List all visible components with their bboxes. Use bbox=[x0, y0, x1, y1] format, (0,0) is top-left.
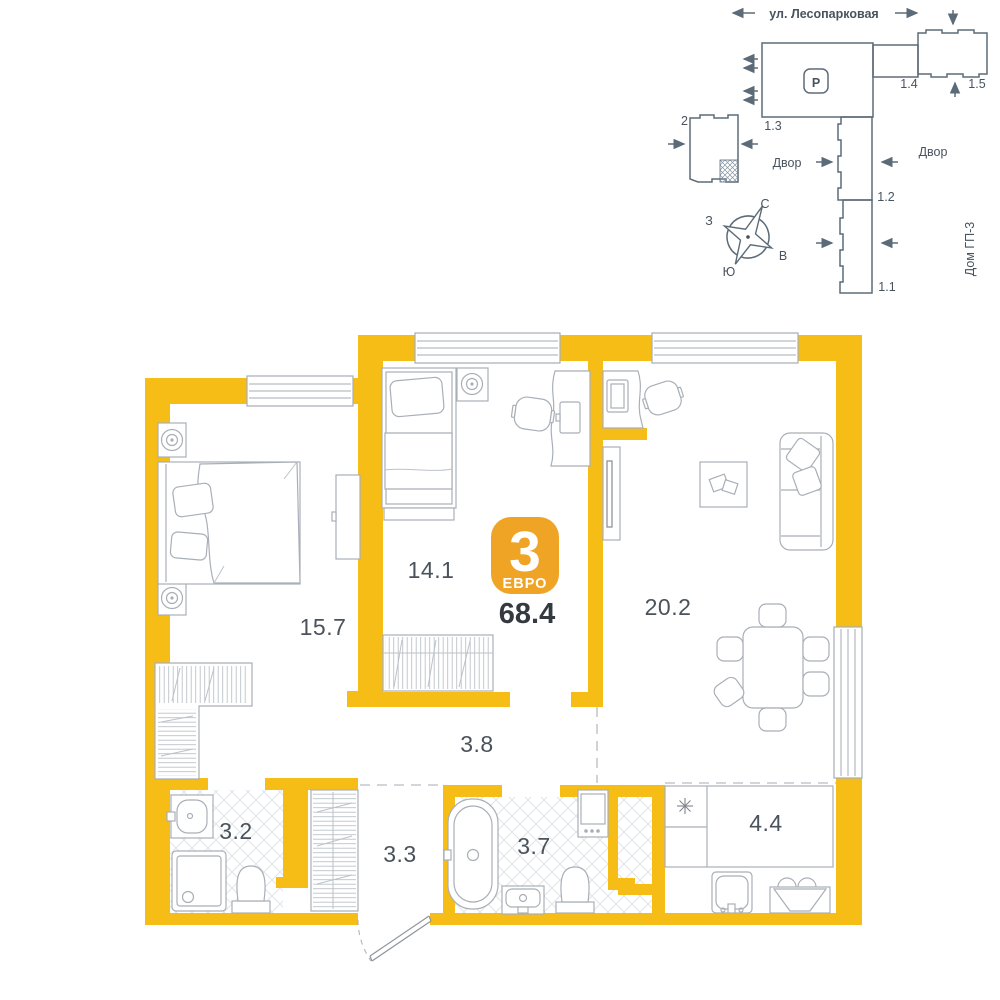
building-1-3-label: 1.3 bbox=[764, 119, 781, 133]
double-bed bbox=[158, 462, 300, 584]
parking-letter: P bbox=[812, 76, 820, 90]
washing-machine-icon bbox=[578, 790, 608, 837]
window-icon bbox=[415, 333, 560, 363]
compass-south-label: Ю bbox=[723, 265, 736, 279]
window-icon bbox=[652, 333, 798, 363]
dresser bbox=[332, 475, 360, 559]
chair bbox=[639, 378, 686, 419]
desk bbox=[603, 371, 643, 428]
building-1-5-label: 1.5 bbox=[968, 77, 985, 91]
compass-icon: С В Ю З bbox=[705, 195, 787, 279]
area-badge: 3 ЕВРО 68.4 bbox=[491, 517, 559, 630]
fridge-snowflake-icon bbox=[677, 798, 693, 814]
compass-north-label: С bbox=[760, 197, 769, 211]
kitchen-area-label: 4.4 bbox=[749, 810, 782, 836]
current-section-marker bbox=[720, 160, 738, 182]
vanity-sink-icon bbox=[502, 886, 544, 914]
shower-icon bbox=[172, 851, 226, 911]
room-bedroom-1 bbox=[155, 423, 360, 779]
bedroom-1-area-label: 15.7 bbox=[300, 614, 347, 640]
wardrobe bbox=[383, 635, 493, 691]
house-name-label: Дом ГП-3 bbox=[963, 222, 977, 277]
room-living bbox=[603, 371, 833, 731]
kitchen-sink-icon bbox=[712, 872, 752, 913]
floor-plan: 15.7 14.1 20.2 3.8 3.2 3.3 3.7 4.4 3 ЕВР… bbox=[145, 333, 862, 961]
building-1-2-label: 1.2 bbox=[877, 190, 894, 204]
building-1-4-label: 1.4 bbox=[900, 77, 917, 91]
building-2-label: 2 bbox=[681, 114, 688, 128]
chair bbox=[510, 395, 556, 433]
badge-type-label: ЕВРО bbox=[503, 576, 548, 592]
tv-console bbox=[603, 447, 620, 540]
stove-icon bbox=[770, 878, 830, 913]
room-closet bbox=[311, 790, 358, 911]
bathroom-2-area-label: 3.7 bbox=[517, 833, 550, 859]
tv-icon bbox=[607, 461, 612, 527]
compass-east-label: В bbox=[779, 249, 787, 263]
street-label: ул. Лесопарковая bbox=[769, 7, 878, 21]
floorplan-canvas: ул. Лесопарковая P 1.3 1.4 1.5 2 1.2 1.1… bbox=[0, 0, 1000, 1000]
monitor-icon bbox=[607, 380, 628, 412]
hallway-area-label: 3.8 bbox=[460, 731, 493, 757]
room-bedroom-2 bbox=[382, 368, 590, 691]
washbasin-icon bbox=[167, 795, 213, 838]
living-room-area-label: 20.2 bbox=[645, 594, 692, 620]
corner-wardrobe bbox=[155, 663, 252, 779]
balcony-window-icon bbox=[834, 627, 862, 778]
monitor-icon bbox=[560, 402, 580, 433]
badge-rooms-count: 3 bbox=[509, 520, 541, 584]
bathtub-icon bbox=[444, 799, 498, 909]
total-area-value: 68.4 bbox=[499, 598, 555, 630]
bathroom-1-area-label: 3.2 bbox=[219, 818, 252, 844]
entrance-opening bbox=[358, 911, 430, 927]
site-plan: ул. Лесопарковая P 1.3 1.4 1.5 2 1.2 1.1… bbox=[668, 7, 987, 294]
room-kitchen bbox=[665, 786, 833, 913]
dining-table bbox=[743, 627, 803, 708]
building-1-5 bbox=[918, 30, 987, 77]
floorplan-page: ул. Лесопарковая P 1.3 1.4 1.5 2 1.2 1.1… bbox=[0, 0, 1000, 1000]
compass-west-label: З bbox=[705, 214, 713, 228]
building-1-2 bbox=[838, 117, 872, 200]
wardrobe bbox=[311, 790, 358, 911]
building-1-4 bbox=[873, 45, 918, 77]
building-1-1-label: 1.1 bbox=[878, 280, 895, 294]
closet-area-label: 3.3 bbox=[383, 841, 416, 867]
single-bed bbox=[382, 368, 456, 520]
coffee-table bbox=[700, 462, 747, 507]
building-1-1 bbox=[840, 200, 872, 293]
yard-left-label: Двор bbox=[773, 156, 802, 170]
bedroom-2-area-label: 14.1 bbox=[408, 557, 455, 583]
yard-right-label: Двор bbox=[919, 145, 948, 159]
window-icon bbox=[247, 376, 353, 406]
sofa bbox=[780, 433, 833, 550]
desk bbox=[551, 371, 590, 466]
